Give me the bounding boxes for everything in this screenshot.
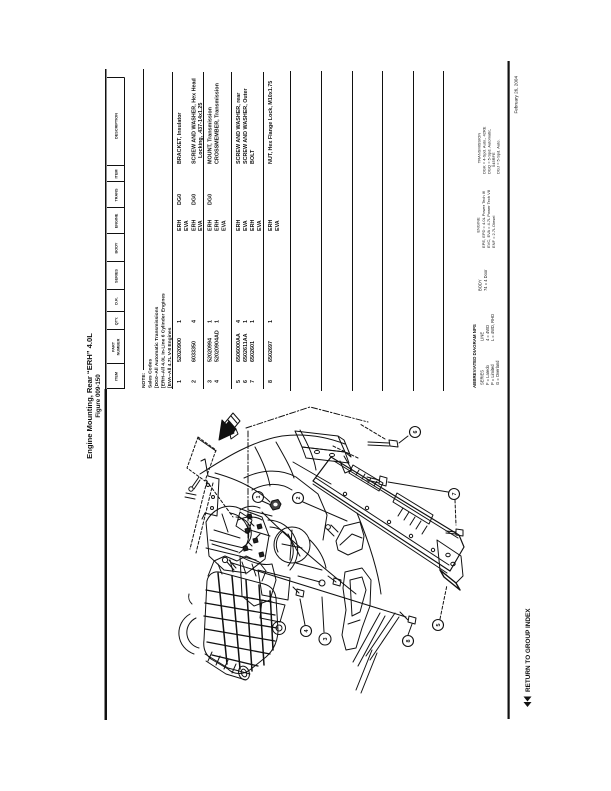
svg-text:L = 4WD, RHD: L = 4WD, RHD [490,314,495,341]
svg-text:74 = 4 Door: 74 = 4 Door [483,269,488,291]
svg-text:ERH: ERH [177,220,183,231]
svg-text:D.R.: D.R. [115,297,119,305]
svg-text:1: 1 [177,320,183,323]
svg-text:7: 7 [452,493,458,496]
svg-text:6506000AA: 6506000AA [236,333,242,362]
svg-text:4: 4 [192,320,198,323]
svg-text:2: 2 [192,380,198,383]
svg-text:DESCRIPTION: DESCRIPTION [115,113,119,139]
svg-text:RETURN TO GROUP INDEX: RETURN TO GROUP INDEX [525,608,532,692]
svg-text:Figure 009-150: Figure 009-150 [95,374,102,418]
svg-text:6502697: 6502697 [268,341,274,362]
svg-text:Engine Mounting, Rear “ERH” 4.: Engine Mounting, Rear “ERH” 4.0L [85,333,94,459]
svg-text:4: 4 [304,630,310,633]
svg-text:LINE: LINE [480,332,485,341]
svg-text:8: 8 [406,640,412,643]
svg-text:ERH: ERH [268,220,274,231]
svg-text:1: 1 [177,380,183,383]
svg-text:6: 6 [243,380,249,383]
svg-text:DG0: DG0 [192,194,198,205]
svg-text:5: 5 [236,380,242,383]
svg-text:ITEM: ITEM [115,169,119,178]
svg-text:SERIES: SERIES [480,370,485,385]
svg-text:8: 8 [268,380,274,383]
svg-text:1: 1 [268,320,274,323]
svg-text:[DG0–All Automatic Transmissio: [DG0–All Automatic Transmissions [154,306,160,388]
svg-text:[ERH–All 4.0L In-Line 6 Cylind: [ERH–All 4.0L In-Line 6 Cylinder Engines [161,293,167,388]
svg-text:1: 1 [250,320,256,323]
svg-text:ERH: ERH [208,220,214,231]
svg-text:2: 2 [296,497,302,500]
svg-text:1: 1 [208,320,214,323]
svg-text:ERH: ERH [192,220,198,231]
svg-text:QTY.: QTY. [115,317,119,325]
svg-text:EVA: EVA [184,220,190,231]
svg-text:52020900: 52020900 [177,338,183,362]
svg-text:SERIES: SERIES [115,269,119,283]
svg-text:February 26, 2004: February 26, 2004 [514,76,519,114]
svg-text:ERH: ERH [215,220,221,231]
svg-text:6502611AA: 6502611AA [243,333,249,362]
svg-text:BRACKET, Insulator: BRACKET, Insulator [177,112,183,164]
svg-text:BODY: BODY [478,279,483,291]
svg-text:MOUNT, Transmission: MOUNT, Transmission [208,107,214,164]
svg-text:EVA: EVA [222,220,228,231]
svg-text:52020904AD: 52020904AD [215,330,221,362]
svg-text:6033350: 6033350 [192,341,198,362]
svg-text:52020994: 52020994 [208,338,214,362]
svg-text:TRANS: TRANS [115,188,119,202]
svg-text:DGJ = 5-Spd. Auto.: DGJ = 5-Spd. Auto. [496,139,501,174]
svg-text:1: 1 [256,496,262,499]
svg-text:EVA: EVA [198,220,204,231]
svg-text:NOTE:: NOTE: [141,372,147,388]
svg-text:ABBREVIATED DIAGRAM NPS: ABBREVIATED DIAGRAM NPS [472,324,477,388]
svg-text:1: 1 [243,320,249,323]
svg-text:BOLT: BOLT [250,149,256,164]
svg-text:SCREW AND WASHER, Outer: SCREW AND WASHER, Outer [243,88,249,164]
svg-text:DG0: DG0 [208,194,214,205]
svg-text:ENGINE: ENGINE [476,217,481,233]
svg-text:CROSSMEMBER, Transmission: CROSSMEMBER, Transmission [215,83,221,164]
svg-text:7: 7 [250,380,256,383]
svg-text:ERH: ERH [236,220,242,231]
svg-text:SCREW AND WASHER, Hex Head: SCREW AND WASHER, Hex Head [192,78,198,164]
svg-text:SCREW AND WASHER, rear: SCREW AND WASHER, rear [236,92,242,164]
svg-text:4: 4 [236,320,242,323]
svg-text:6502601: 6502601 [250,341,256,362]
svg-text:ENF = 2.7L Diesel: ENF = 2.7L Diesel [491,215,496,248]
svg-text:NUT, Hex Flange Lock, M10x1.75: NUT, Hex Flange Lock, M10x1.75 [268,81,274,164]
svg-text:4: 4 [215,380,221,383]
svg-text:5: 5 [436,624,442,627]
svg-text:1: 1 [215,320,221,323]
svg-text:Locking, .437-14x1.25: Locking, .437-14x1.25 [198,103,204,158]
svg-text:PART: PART [112,341,116,352]
svg-text:EVA: EVA [243,220,249,231]
svg-text:ITEM: ITEM [115,372,119,381]
svg-text:3: 3 [208,380,214,383]
svg-text:6: 6 [413,431,419,434]
svg-text:BODY: BODY [115,242,119,253]
svg-text:3: 3 [323,638,329,641]
svg-text:G = Overland: G = Overland [495,360,500,385]
svg-text:Sales Codes: Sales Codes [148,359,154,388]
svg-text:EVA: EVA [275,220,281,231]
svg-text:ENGINE: ENGINE [115,213,119,228]
svg-text:EVA: EVA [257,220,263,231]
svg-text:NUMBER: NUMBER [117,338,121,355]
svg-text:DG0: DG0 [177,194,183,205]
svg-text:ERH: ERH [250,220,256,231]
